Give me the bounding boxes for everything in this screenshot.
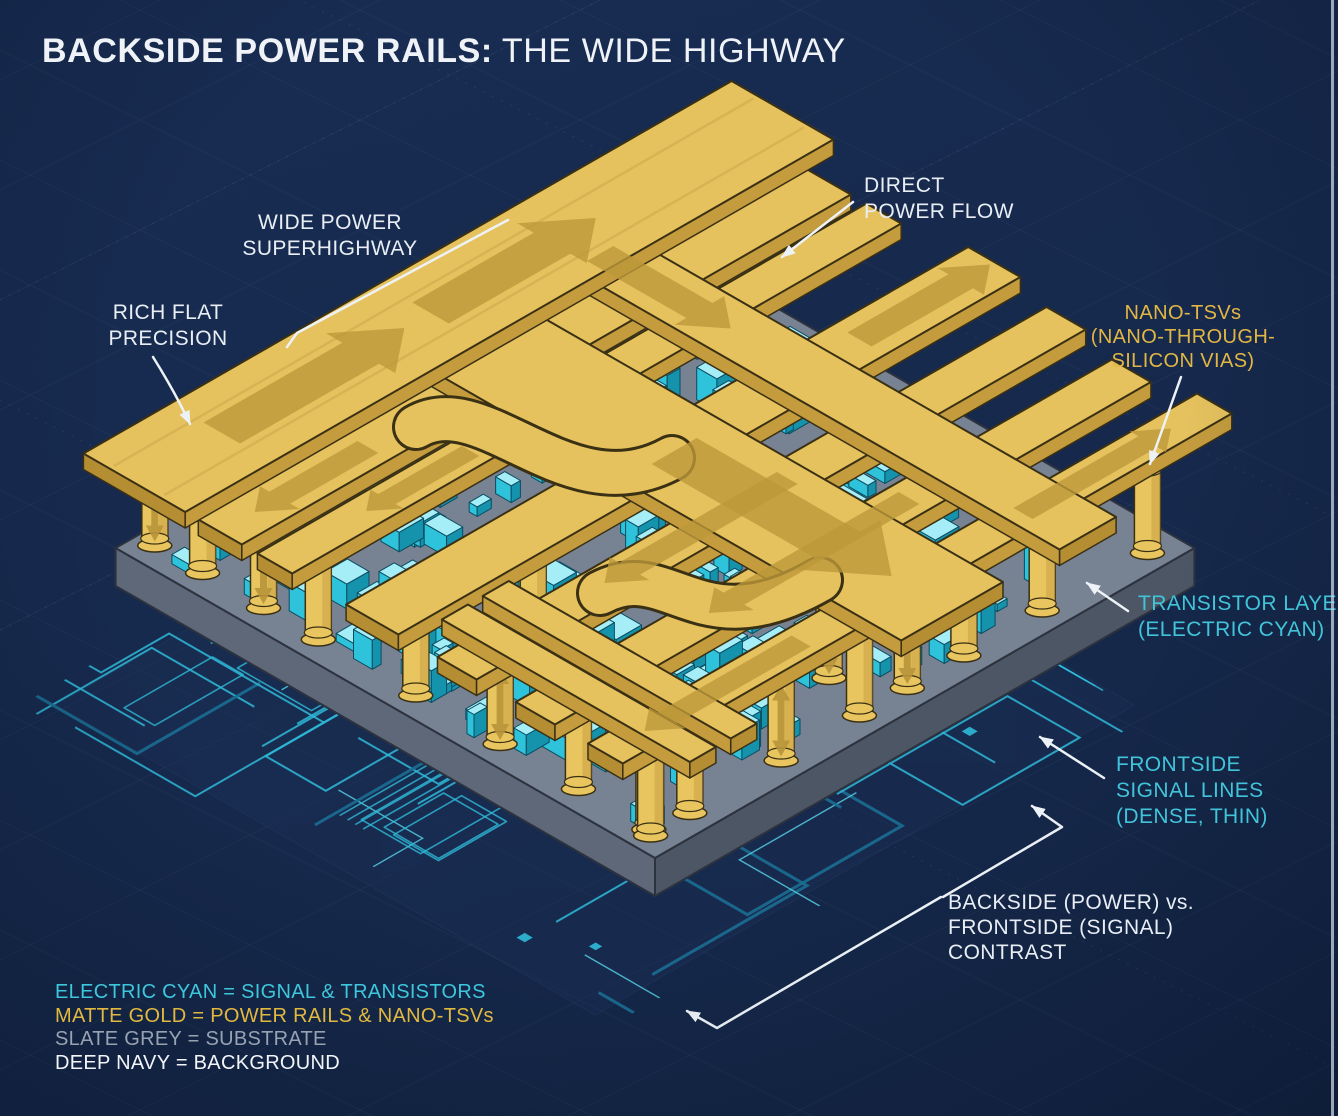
legend-item-matte-gold: MATTE GOLD = POWER RAILS & NANO-TSVs [55,1005,494,1029]
infographic-backside-power-rails: { "title": {"primary": "BACKSIDE POWER R… [0,0,1338,1116]
label-wide-power-superhighway: WIDE POWER SUPERHIGHWAY [228,210,432,262]
label-direct-power-flow: DIRECT POWER FLOW [864,173,1014,225]
page-title: BACKSIDE POWER RAILS:THE WIDE HIGHWAY [42,32,846,71]
label-frontside-signal-lines: FRONTSIDE SIGNAL LINES (DENSE, THIN) [1116,752,1268,830]
label-transistor-layer: TRANSISTOR LAYER (ELECTRIC CYAN) [1138,591,1338,643]
label-backside-vs-frontside: BACKSIDE (POWER) vs. FRONTSIDE (SIGNAL) … [948,890,1194,965]
label-nano-tsvs: NANO-TSVs (NANO-THROUGH- SILICON VIAS) [1058,301,1308,373]
title-primary: BACKSIDE POWER RAILS: [42,32,493,70]
legend-item-deep-navy: DEEP NAVY = BACKGROUND [55,1052,494,1076]
color-legend: ELECTRIC CYAN = SIGNAL & TRANSISTORS MAT… [55,981,494,1075]
label-rich-flat-precision: RICH FLAT PRECISION [88,300,248,352]
right-edge-strip [1331,0,1334,1116]
legend-item-slate-grey: SLATE GREY = SUBSTRATE [55,1028,494,1052]
legend-item-electric-cyan: ELECTRIC CYAN = SIGNAL & TRANSISTORS [55,981,494,1005]
title-secondary: THE WIDE HIGHWAY [502,32,846,70]
